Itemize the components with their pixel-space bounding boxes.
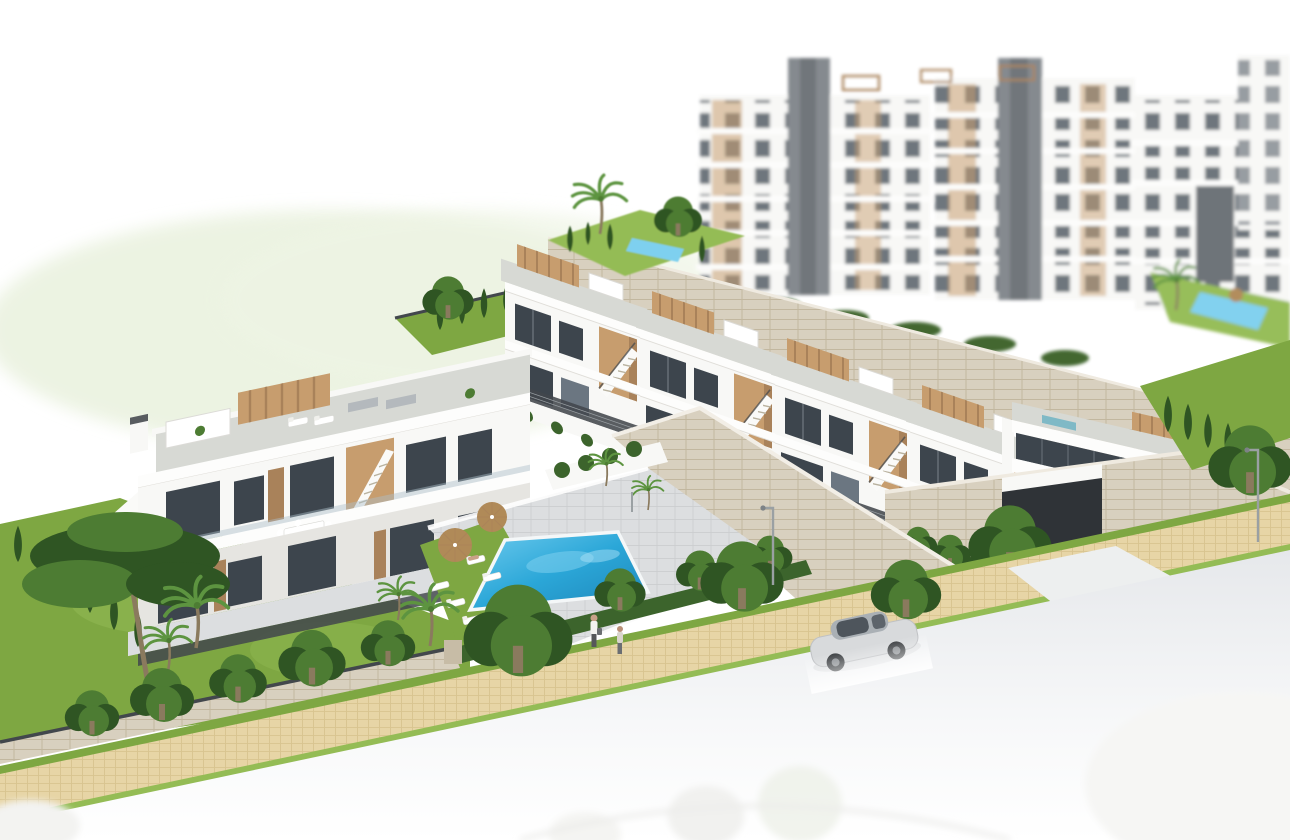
wall-pillar <box>444 640 462 664</box>
architectural-render <box>0 0 1290 840</box>
window <box>288 536 336 596</box>
render-canvas <box>0 0 1290 840</box>
parasol <box>477 502 507 532</box>
dark-cladding-panel <box>1196 186 1234 282</box>
parasol <box>438 528 472 562</box>
window <box>228 556 262 607</box>
parasol <box>1229 288 1243 302</box>
wood-shutter <box>374 529 386 580</box>
window <box>234 475 264 525</box>
faded-tree <box>758 766 842 840</box>
wood-shutter <box>268 467 284 522</box>
bag <box>597 628 602 635</box>
